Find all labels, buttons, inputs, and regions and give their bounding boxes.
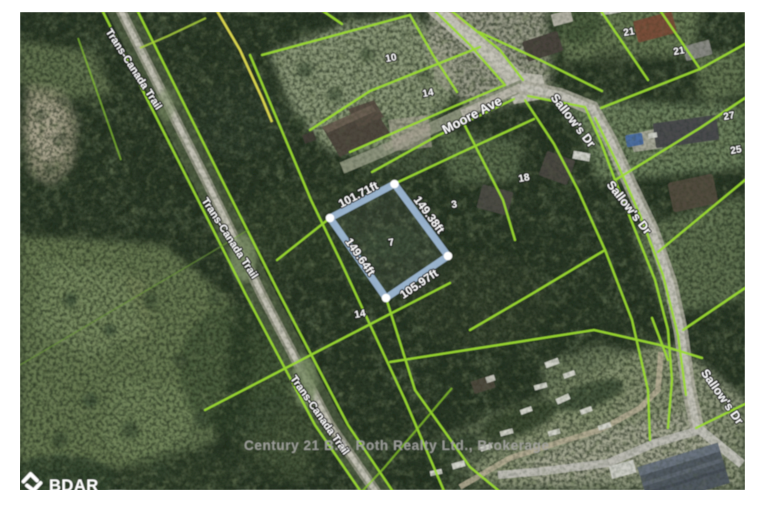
svg-text:Century 21 B.J. Roth Realty Lt: Century 21 B.J. Roth Realty Ltd., Broker… xyxy=(244,438,550,453)
